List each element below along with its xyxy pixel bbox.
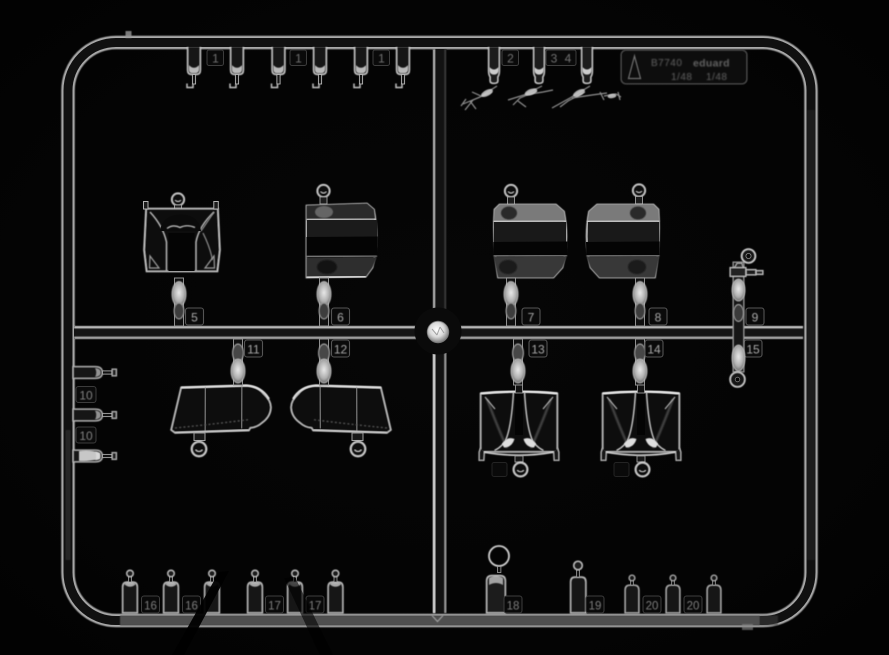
svg-text:B7740: B7740 [651, 58, 682, 69]
svg-text:5: 5 [191, 311, 198, 325]
svg-text:15: 15 [746, 343, 760, 357]
svg-text:18: 18 [507, 601, 520, 613]
svg-text:12: 12 [334, 343, 348, 357]
svg-text:13: 13 [531, 343, 545, 357]
svg-text:9: 9 [752, 311, 759, 325]
svg-text:eduard: eduard [693, 58, 730, 70]
svg-text:1: 1 [378, 52, 385, 66]
svg-text:17: 17 [268, 601, 281, 613]
svg-text:1/48: 1/48 [706, 72, 727, 83]
svg-text:6: 6 [337, 311, 344, 325]
svg-text:1: 1 [212, 52, 219, 66]
svg-text:20: 20 [646, 601, 659, 613]
svg-text:11: 11 [247, 343, 260, 357]
svg-text:8: 8 [655, 311, 662, 325]
svg-text:1/48: 1/48 [671, 72, 692, 83]
svg-text:2: 2 [507, 52, 514, 66]
svg-text:16: 16 [144, 601, 157, 613]
svg-text:1: 1 [295, 52, 302, 66]
svg-text:16: 16 [185, 601, 198, 613]
svg-text:4: 4 [565, 52, 572, 66]
svg-text:7: 7 [528, 311, 535, 325]
svg-text:20: 20 [687, 601, 700, 613]
svg-text:3: 3 [551, 52, 558, 66]
svg-text:19: 19 [589, 601, 602, 613]
svg-text:14: 14 [647, 343, 661, 357]
